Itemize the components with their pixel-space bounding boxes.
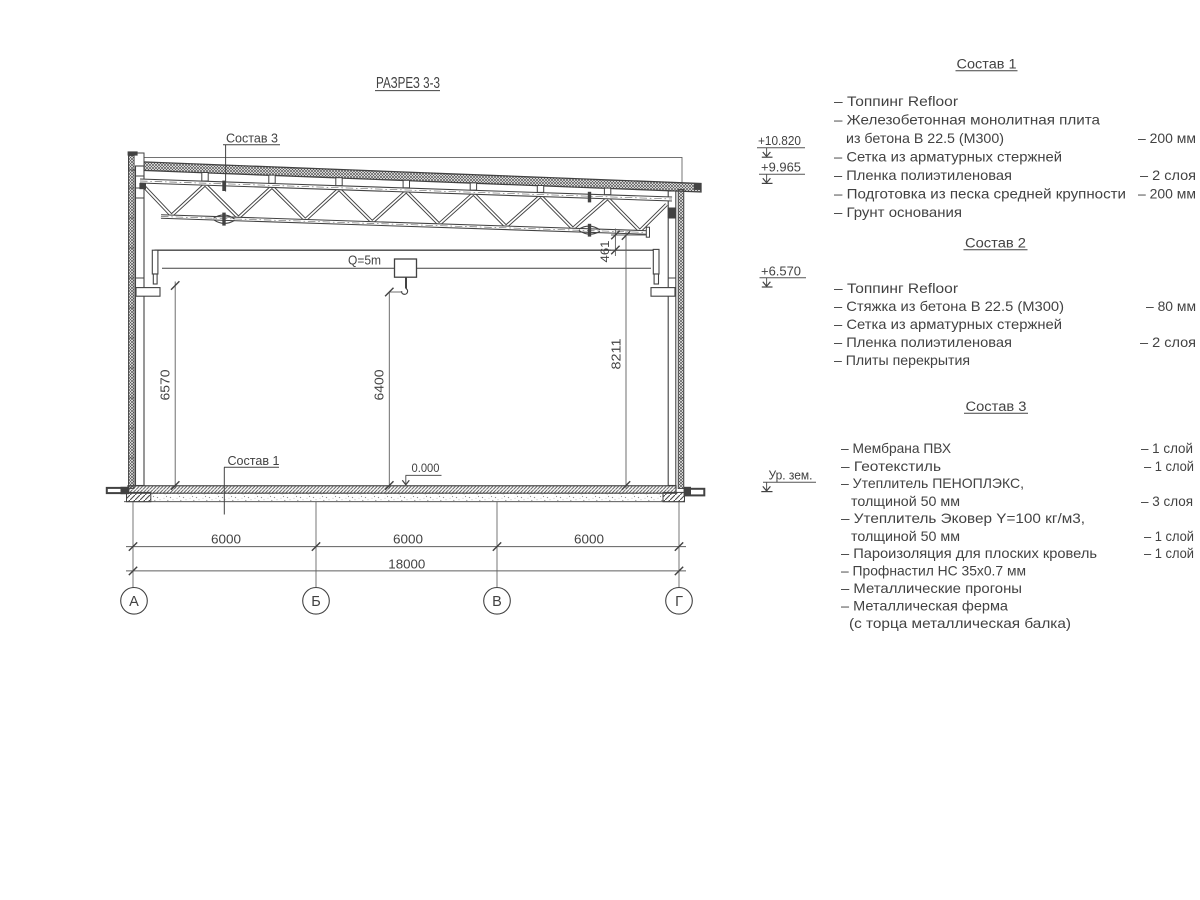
svg-text:+6.570: +6.570 <box>761 264 801 278</box>
svg-text:– Профнастил НС 35х0.7 мм: – Профнастил НС 35х0.7 мм <box>841 563 1026 579</box>
svg-text:– 2 слоя: – 2 слоя <box>1140 167 1196 183</box>
svg-text:Состав 2: Состав 2 <box>965 235 1026 250</box>
svg-text:– Пленка полиэтиленовая: – Пленка полиэтиленовая <box>834 334 1012 350</box>
svg-text:– 1 слой: – 1 слой <box>1141 440 1193 456</box>
svg-text:толщиной 50 мм: толщиной 50 мм <box>851 528 960 544</box>
svg-text:– 1 слой: – 1 слой <box>1144 528 1194 544</box>
svg-text:6400: 6400 <box>373 369 387 400</box>
svg-text:– 1 слой: – 1 слой <box>1144 545 1194 561</box>
svg-text:– 200 мм: – 200 мм <box>1138 186 1196 202</box>
svg-text:– Пленка полиэтиленовая: – Пленка полиэтиленовая <box>834 167 1012 183</box>
svg-text:Б: Б <box>311 594 321 610</box>
svg-text:– Геотекстиль: – Геотекстиль <box>841 458 941 474</box>
svg-text:– Сетка из арматурных стержней: – Сетка из арматурных стержней <box>834 316 1062 332</box>
svg-text:– Металлическая ферма: – Металлическая ферма <box>841 598 1008 614</box>
svg-text:8211: 8211 <box>610 338 624 369</box>
svg-text:– Сетка из арматурных стержней: – Сетка из арматурных стержней <box>834 149 1062 165</box>
svg-text:6570: 6570 <box>159 369 173 400</box>
svg-text:из бетона В 22.5 (М300): из бетона В 22.5 (М300) <box>846 130 1004 146</box>
svg-text:6000: 6000 <box>393 532 423 547</box>
svg-text:Г: Г <box>675 594 683 610</box>
svg-text:– Пароизоляция для плоских кро: – Пароизоляция для плоских кровель <box>841 545 1097 561</box>
svg-text:– 200 мм: – 200 мм <box>1138 130 1196 146</box>
svg-text:6000: 6000 <box>211 532 241 547</box>
svg-text:18000: 18000 <box>388 556 425 571</box>
svg-text:0.000: 0.000 <box>412 461 440 475</box>
svg-text:Состав 3: Состав 3 <box>966 399 1027 414</box>
svg-text:6000: 6000 <box>574 532 604 547</box>
svg-text:– Утеплитель Эковер Y=100 кг/м: – Утеплитель Эковер Y=100 кг/м3, <box>841 510 1085 526</box>
svg-text:– Мембрана ПВХ: – Мембрана ПВХ <box>841 440 952 456</box>
svg-text:Состав 1: Состав 1 <box>228 453 280 468</box>
svg-text:РАЗРЕЗ 3-3: РАЗРЕЗ 3-3 <box>376 75 440 92</box>
svg-text:толщиной 50 мм: толщиной 50 мм <box>851 493 960 509</box>
svg-text:– Утеплитель ПЕНОПЛЭКС,: – Утеплитель ПЕНОПЛЭКС, <box>841 475 1024 491</box>
svg-text:– 2 слоя: – 2 слоя <box>1140 334 1196 350</box>
svg-text:– Топпинг Refloor: – Топпинг Refloor <box>834 280 958 296</box>
svg-text:– Стяжка из бетона В 22.5 (М30: – Стяжка из бетона В 22.5 (М300) <box>834 298 1064 314</box>
svg-text:Состав 1: Состав 1 <box>957 56 1017 71</box>
svg-text:– 3 слоя: – 3 слоя <box>1141 493 1193 509</box>
svg-text:Ур. зем.: Ур. зем. <box>769 469 813 483</box>
svg-text:461: 461 <box>600 241 612 263</box>
svg-text:– Подготовка из песка средней: – Подготовка из песка средней крупности <box>834 186 1126 202</box>
svg-text:А: А <box>129 594 139 610</box>
svg-text:Состав 3: Состав 3 <box>226 130 278 145</box>
svg-text:+9.965: +9.965 <box>761 161 801 175</box>
svg-text:– Грунт основания: – Грунт основания <box>834 204 962 220</box>
svg-text:+10.820: +10.820 <box>758 134 801 148</box>
svg-text:(с торца металлическая балка): (с торца металлическая балка) <box>849 615 1071 631</box>
svg-text:– Железобетонная монолитная п: – Железобетонная монолитная плита <box>834 112 1100 128</box>
svg-text:– 80 мм: – 80 мм <box>1146 298 1196 314</box>
svg-text:Q=5m: Q=5m <box>348 254 381 268</box>
svg-text:– Топпинг Refloor: – Топпинг Refloor <box>834 93 958 109</box>
svg-text:– Плиты перекрытия: – Плиты перекрытия <box>834 352 970 368</box>
svg-text:– Металлические прогоны: – Металлические прогоны <box>841 580 1022 596</box>
svg-text:– 1 слой: – 1 слой <box>1144 458 1194 474</box>
svg-text:В: В <box>492 594 502 610</box>
